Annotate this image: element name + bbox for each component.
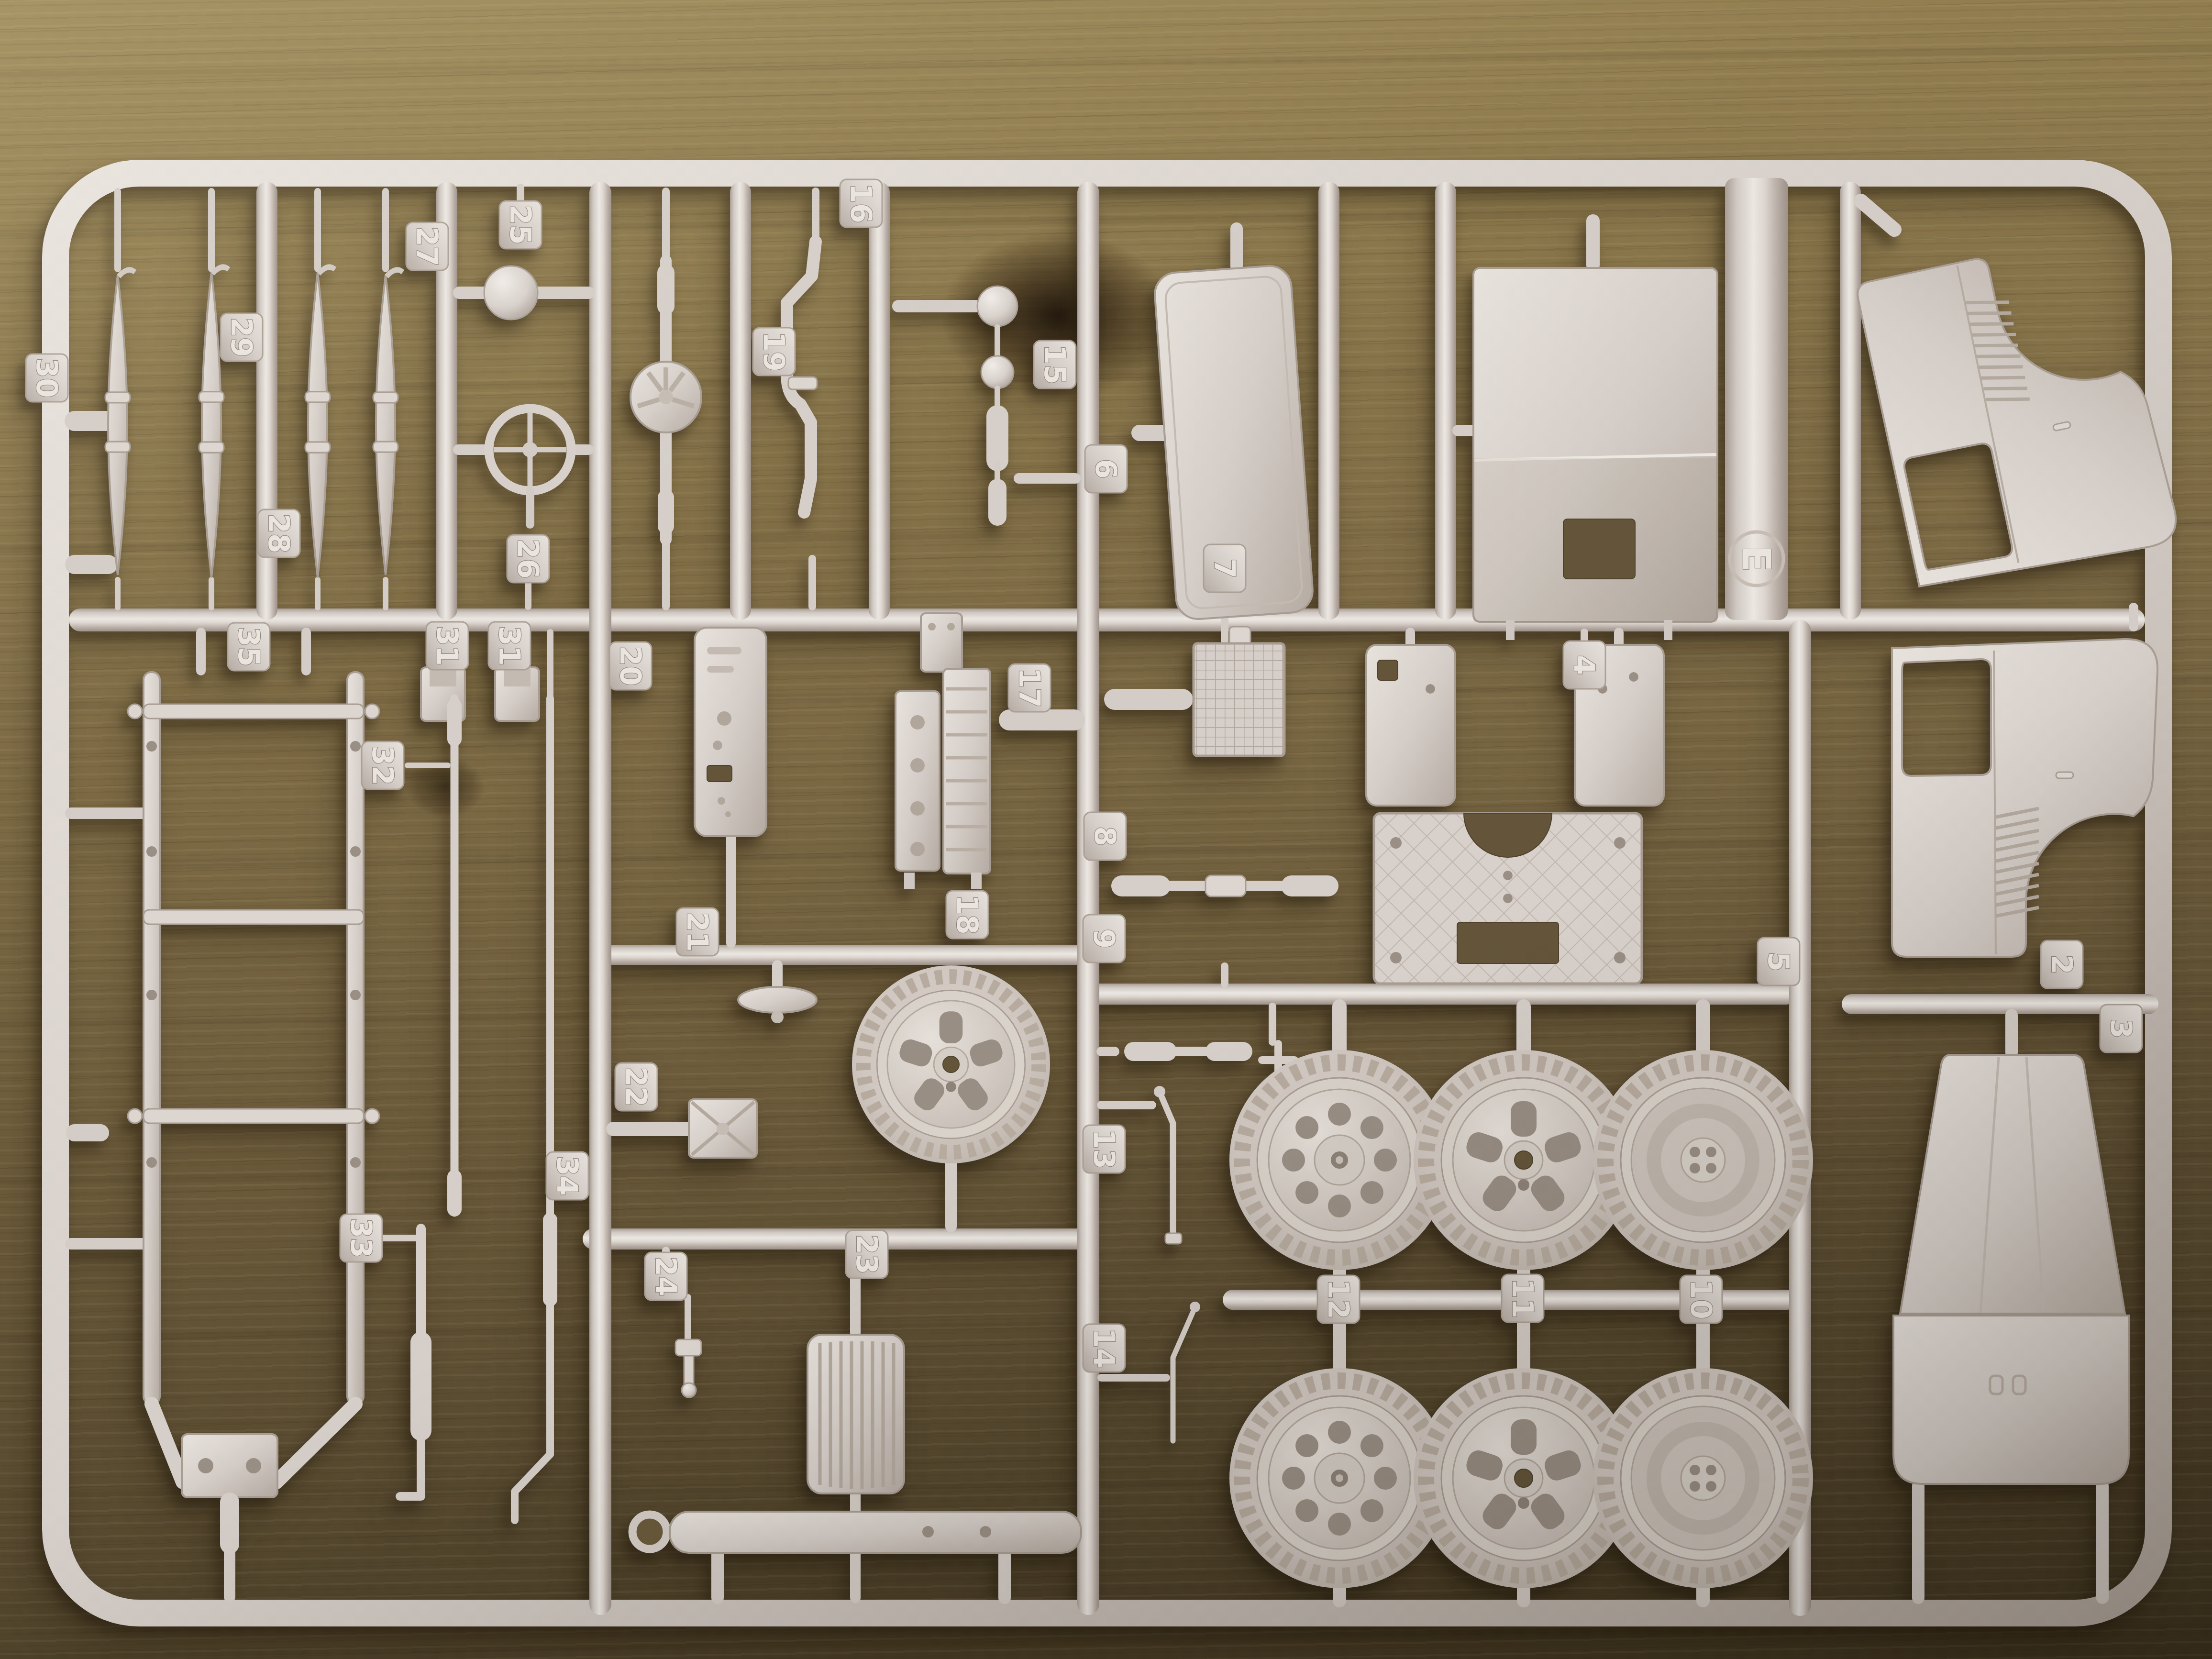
part-number-tag: 26 [507, 535, 549, 583]
part-number-tag: 17 [1008, 664, 1051, 712]
svg-text:3: 3 [2104, 1018, 2138, 1039]
svg-text:23: 23 [850, 1234, 884, 1274]
part-number-tag: 18 [946, 891, 988, 939]
svg-text:21: 21 [681, 912, 714, 952]
cab-roof-part [1893, 1055, 2129, 1484]
svg-text:19: 19 [757, 332, 791, 372]
part-number-tag: 24 [645, 1252, 687, 1300]
svg-text:2: 2 [2045, 954, 2079, 974]
part-number-tag: 12 [1317, 1275, 1360, 1323]
engine-part [896, 613, 990, 889]
part-number-tag: 25 [499, 201, 542, 249]
svg-text:5: 5 [1762, 951, 1795, 972]
svg-text:28: 28 [262, 513, 296, 553]
svg-text:6: 6 [1089, 459, 1123, 479]
cab-side-left-part [1892, 639, 2157, 957]
svg-text:12: 12 [1322, 1279, 1355, 1319]
part-number-tag: 19 [753, 328, 795, 376]
part-number-tag: 7 [1204, 544, 1246, 592]
part-number-tag: 2 [2041, 940, 2083, 988]
svg-text:7: 7 [1208, 558, 1241, 578]
svg-text:25: 25 [504, 205, 537, 245]
leaf-spring-part [305, 267, 335, 577]
part-number-tag: 35 [228, 623, 270, 671]
part-number-tag: 28 [258, 509, 300, 557]
svg-text:15: 15 [1038, 344, 1072, 385]
svg-text:24: 24 [649, 1256, 683, 1296]
spare-wheel [852, 965, 1050, 1163]
part-number-tag: 23 [846, 1230, 888, 1278]
front-axle-part [787, 242, 817, 512]
svg-text:32: 32 [366, 745, 399, 785]
svg-text:31: 31 [493, 626, 526, 666]
part-number-tag: 21 [676, 908, 719, 956]
svg-text:9: 9 [1087, 929, 1121, 949]
headlamp-part [484, 266, 538, 320]
svg-text:35: 35 [232, 627, 265, 667]
svg-text:22: 22 [619, 1067, 653, 1107]
part-number-tag: 10 [1680, 1275, 1722, 1323]
part-number-tag: 29 [221, 313, 263, 361]
part-number-tag: 34 [546, 1152, 588, 1200]
svg-text:27: 27 [410, 226, 444, 266]
part-number-tag: 30 [26, 354, 68, 402]
part-number-tag: 15 [1034, 341, 1076, 388]
rear-axle-part [630, 261, 701, 540]
road-wheel-inner-face [1593, 1368, 1813, 1588]
cab-floor-part [1366, 645, 1664, 984]
part-number-tag: 11 [1502, 1274, 1544, 1322]
model-kit-sprue: Light beige injection-moulded model kit … [0, 0, 2212, 1659]
part-number-tag: 4 [1563, 641, 1605, 689]
radiator-grille-part [807, 1335, 904, 1493]
svg-text:30: 30 [30, 358, 64, 398]
part-number-tag: 14 [1083, 1324, 1125, 1372]
air-filter-part [738, 965, 817, 1023]
svg-text:14: 14 [1087, 1328, 1121, 1368]
svg-text:34: 34 [551, 1156, 584, 1196]
svg-text:16: 16 [844, 183, 878, 223]
part-number-tag: 8 [1084, 812, 1126, 860]
gear-lever-part [1173, 1302, 1200, 1441]
part-number-tag: 6 [1085, 445, 1127, 493]
radiator-part [1194, 627, 1284, 756]
chassis-frame-part [128, 672, 379, 1544]
svg-text:11: 11 [1506, 1278, 1539, 1318]
svg-text:8: 8 [1088, 826, 1122, 846]
svg-text:17: 17 [1013, 668, 1046, 708]
small-fittings-part [977, 286, 1018, 517]
part-number-tag: 31 [426, 622, 468, 670]
steering-wheel-part [489, 409, 571, 524]
svg-text:20: 20 [614, 646, 647, 686]
part-number-tag: 3 [2100, 1005, 2142, 1052]
part-number-tag: 5 [1758, 938, 1800, 985]
part-number-tag: 22 [615, 1063, 657, 1111]
part-number-tag: 9 [1083, 915, 1125, 962]
battery-part [689, 1099, 757, 1158]
svg-text:31: 31 [431, 626, 464, 666]
engine-mount-part [495, 667, 539, 721]
sprue-letter: E [1734, 546, 1779, 572]
front-bumper-part [632, 1512, 1081, 1553]
part-number-tag: 33 [340, 1214, 382, 1262]
road-wheel-inner-face [1593, 1050, 1813, 1270]
cab-side-right-part [1855, 229, 2181, 595]
svg-text:10: 10 [1684, 1279, 1718, 1319]
svg-text:4: 4 [1568, 655, 1601, 675]
svg-text:13: 13 [1087, 1129, 1121, 1169]
exhaust-pipe-part [400, 1228, 421, 1496]
dashboard-part [695, 628, 766, 836]
part-number-tag: 27 [406, 222, 448, 270]
svg-text:29: 29 [225, 317, 258, 357]
svg-text:26: 26 [511, 539, 545, 579]
cab-back-panel-part [1473, 268, 1717, 640]
photo-scene: Light beige injection-moulded model kit … [0, 0, 2212, 1659]
leaf-spring-part [373, 270, 403, 575]
tie-rod-part [515, 698, 550, 1520]
part-number-tag: 32 [362, 741, 404, 789]
svg-text:18: 18 [951, 895, 984, 935]
bracket-part [675, 1339, 701, 1397]
part-number-tag: 20 [609, 642, 652, 690]
track-rod-part [1119, 875, 1330, 896]
part-number-tag: 31 [488, 622, 531, 670]
leaf-spring-part [105, 270, 135, 575]
svg-text:33: 33 [344, 1218, 378, 1258]
handbrake-lever-part [1154, 1086, 1182, 1244]
part-number-tag: 16 [840, 179, 882, 227]
part-number-tag: 13 [1083, 1125, 1125, 1173]
